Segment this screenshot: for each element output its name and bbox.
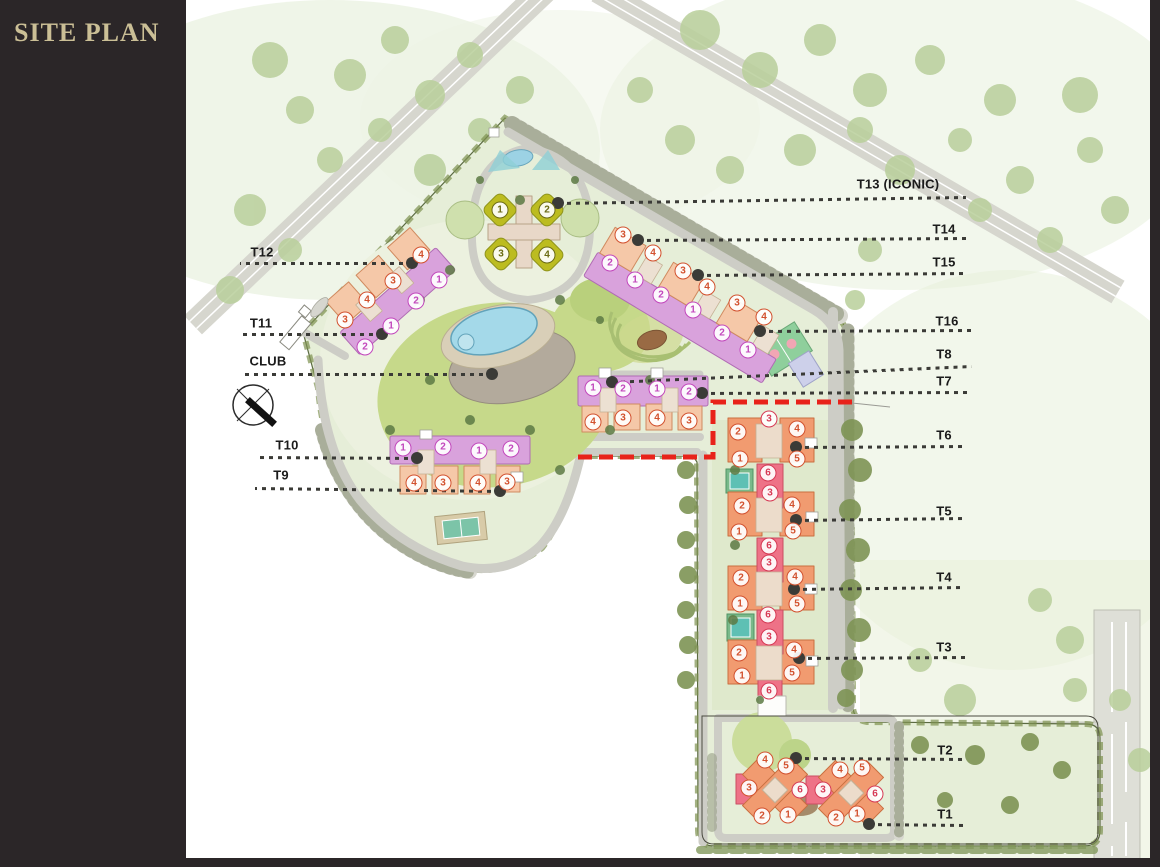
site-plan-page: T13 (ICONIC)T14T15T16T8T7T6T5T4T3T2T1T12… — [0, 0, 1160, 867]
tennis-court-south — [435, 511, 488, 544]
north-arrow-compass — [233, 385, 273, 425]
bottom-frame-bar — [186, 858, 1160, 867]
kids-pool — [458, 334, 474, 350]
tennis-court-strip-1 — [726, 469, 753, 493]
page-title: SITE PLAN — [14, 18, 160, 48]
right-frame-bar — [1150, 0, 1160, 867]
tower-t13-iconic — [482, 192, 566, 274]
left-title-panel: SITE PLAN — [0, 0, 186, 867]
